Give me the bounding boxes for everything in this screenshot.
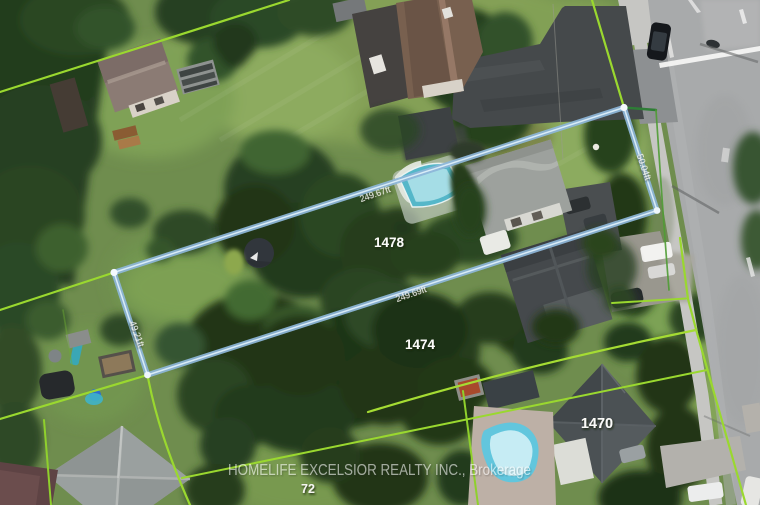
svg-text:HOMELIFE EXCELSIOR REALTY INC.: HOMELIFE EXCELSIOR REALTY INC., Brokerag… — [228, 462, 531, 479]
svg-text:1478: 1478 — [374, 235, 405, 250]
svg-text:72: 72 — [301, 482, 315, 496]
svg-text:1474: 1474 — [405, 337, 436, 352]
svg-text:1470: 1470 — [581, 416, 613, 432]
